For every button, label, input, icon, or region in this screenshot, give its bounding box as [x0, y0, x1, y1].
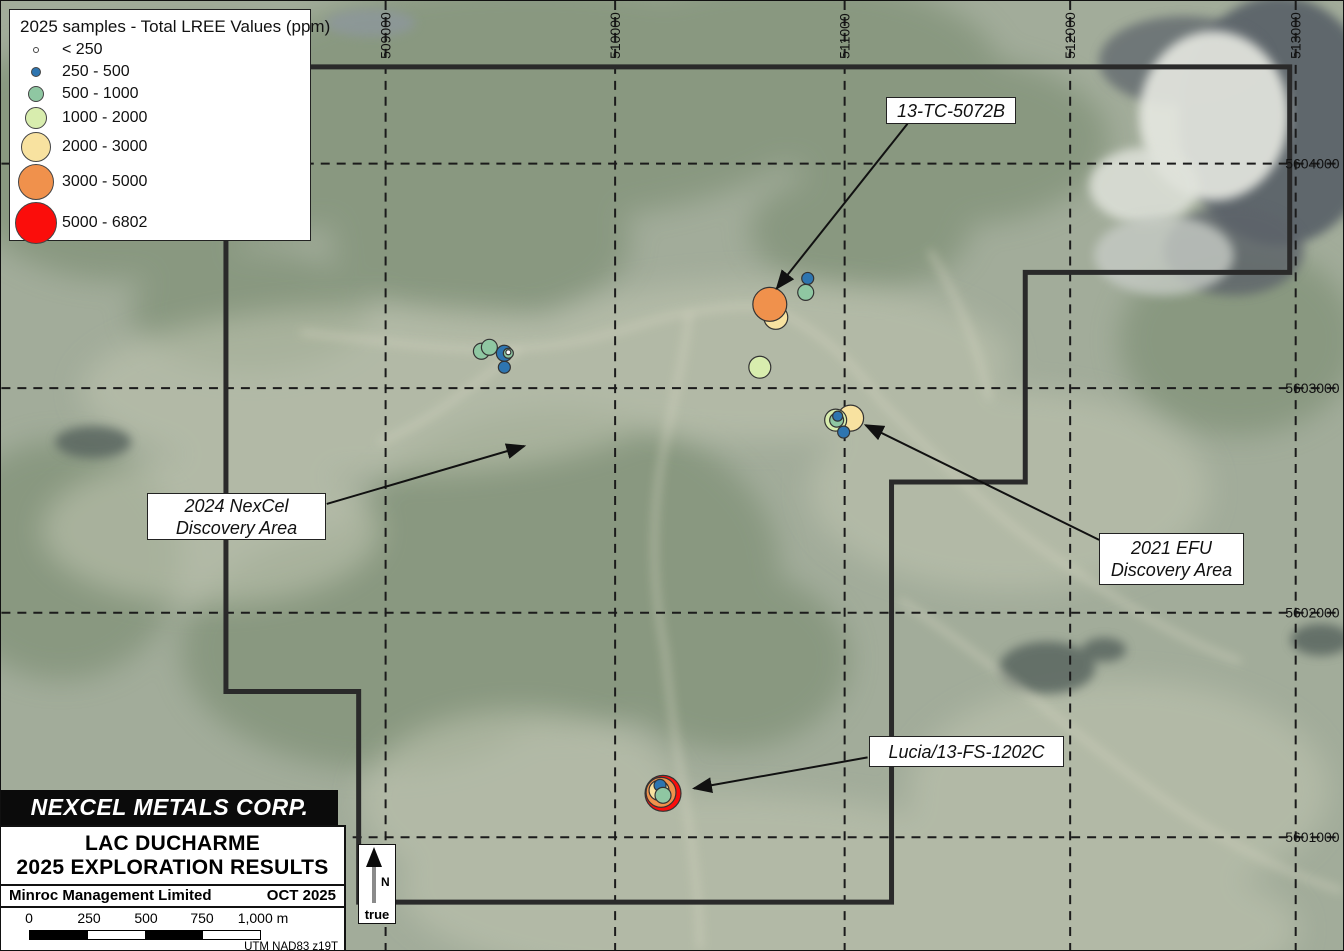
- annotation-text: Lucia/13-FS-1202C: [888, 741, 1044, 763]
- annotation-text: 2024 NexCel: [184, 495, 288, 517]
- datum-label: UTM NAD83 z19T: [244, 941, 338, 951]
- annotation-label-efu: 2021 EFUDiscovery Area: [1099, 533, 1244, 585]
- legend-symbol-circle: [21, 132, 51, 162]
- legend-item-label: < 250: [62, 41, 102, 59]
- legend-symbol-circle: [33, 47, 39, 53]
- scale-segment: [145, 931, 203, 939]
- annotation-label-lucia: Lucia/13-FS-1202C: [869, 736, 1064, 767]
- legend-box: 2025 samples - Total LREE Values (ppm) <…: [9, 9, 311, 241]
- legend-items: < 250250 - 500500 - 10001000 - 20002000 …: [10, 39, 310, 245]
- legend-item: 2000 - 3000: [10, 131, 310, 163]
- company-banner: NEXCEL METALS CORP.: [1, 790, 338, 825]
- north-n-label: N: [381, 875, 390, 889]
- map-title-line2: 2025 EXPLORATION RESULTS: [1, 856, 344, 880]
- legend-item: < 250: [10, 39, 310, 61]
- annotation-label-tc: 13-TC-5072B: [886, 97, 1016, 124]
- scale-segment: [88, 931, 146, 939]
- scale-segment: [30, 931, 88, 939]
- map-date: OCT 2025: [267, 887, 336, 904]
- scale-segment: [203, 931, 261, 939]
- legend-item-label: 3000 - 5000: [62, 173, 147, 191]
- legend-item-label: 2000 - 3000: [62, 138, 147, 156]
- legend-item-label: 500 - 1000: [62, 85, 139, 103]
- legend-symbol-circle: [25, 107, 47, 129]
- legend-item-label: 5000 - 6802: [62, 214, 147, 232]
- company-name: NEXCEL METALS CORP.: [31, 794, 309, 821]
- annotation-label-nexcel: 2024 NexCelDiscovery Area: [147, 493, 326, 540]
- legend-symbol-circle: [18, 164, 54, 200]
- legend-symbol-circle: [31, 67, 41, 77]
- annotation-text: 13-TC-5072B: [897, 100, 1005, 122]
- annotation-text: Discovery Area: [176, 517, 297, 539]
- map-canvas: 5090005100005110005120005130005604000560…: [0, 0, 1344, 951]
- scale-tick-label: 250: [77, 910, 100, 926]
- legend-item-label: 250 - 500: [62, 63, 130, 81]
- scale-tick-label: 500: [134, 910, 157, 926]
- legend-item: 5000 - 6802: [10, 201, 310, 245]
- legend-item-label: 1000 - 2000: [62, 109, 147, 127]
- legend-symbol-circle: [15, 202, 57, 244]
- legend-item: 3000 - 5000: [10, 163, 310, 201]
- legend-item: 250 - 500: [10, 61, 310, 83]
- annotation-text: Discovery Area: [1111, 559, 1232, 581]
- legend-item: 1000 - 2000: [10, 105, 310, 131]
- scale-tick-label: 1,000 m: [238, 910, 289, 926]
- prepared-by: Minroc Management Limited: [9, 887, 212, 904]
- scale-bar-graphic: [29, 930, 261, 940]
- north-true-label: true: [359, 907, 395, 922]
- title-block: LAC DUCHARME 2025 EXPLORATION RESULTS Mi…: [1, 825, 346, 951]
- legend-symbol-circle: [28, 86, 44, 102]
- legend-title: 2025 samples - Total LREE Values (ppm): [20, 17, 302, 37]
- scale-tick-label: 0: [25, 910, 33, 926]
- north-arrow: N true: [358, 844, 396, 924]
- scale-tick-label: 750: [190, 910, 213, 926]
- scale-bar: 02505007501,000 m UTM NAD83 z19T: [1, 906, 344, 951]
- annotation-text: 2021 EFU: [1131, 537, 1212, 559]
- map-title-line1: LAC DUCHARME: [1, 832, 344, 856]
- legend-item: 500 - 1000: [10, 83, 310, 105]
